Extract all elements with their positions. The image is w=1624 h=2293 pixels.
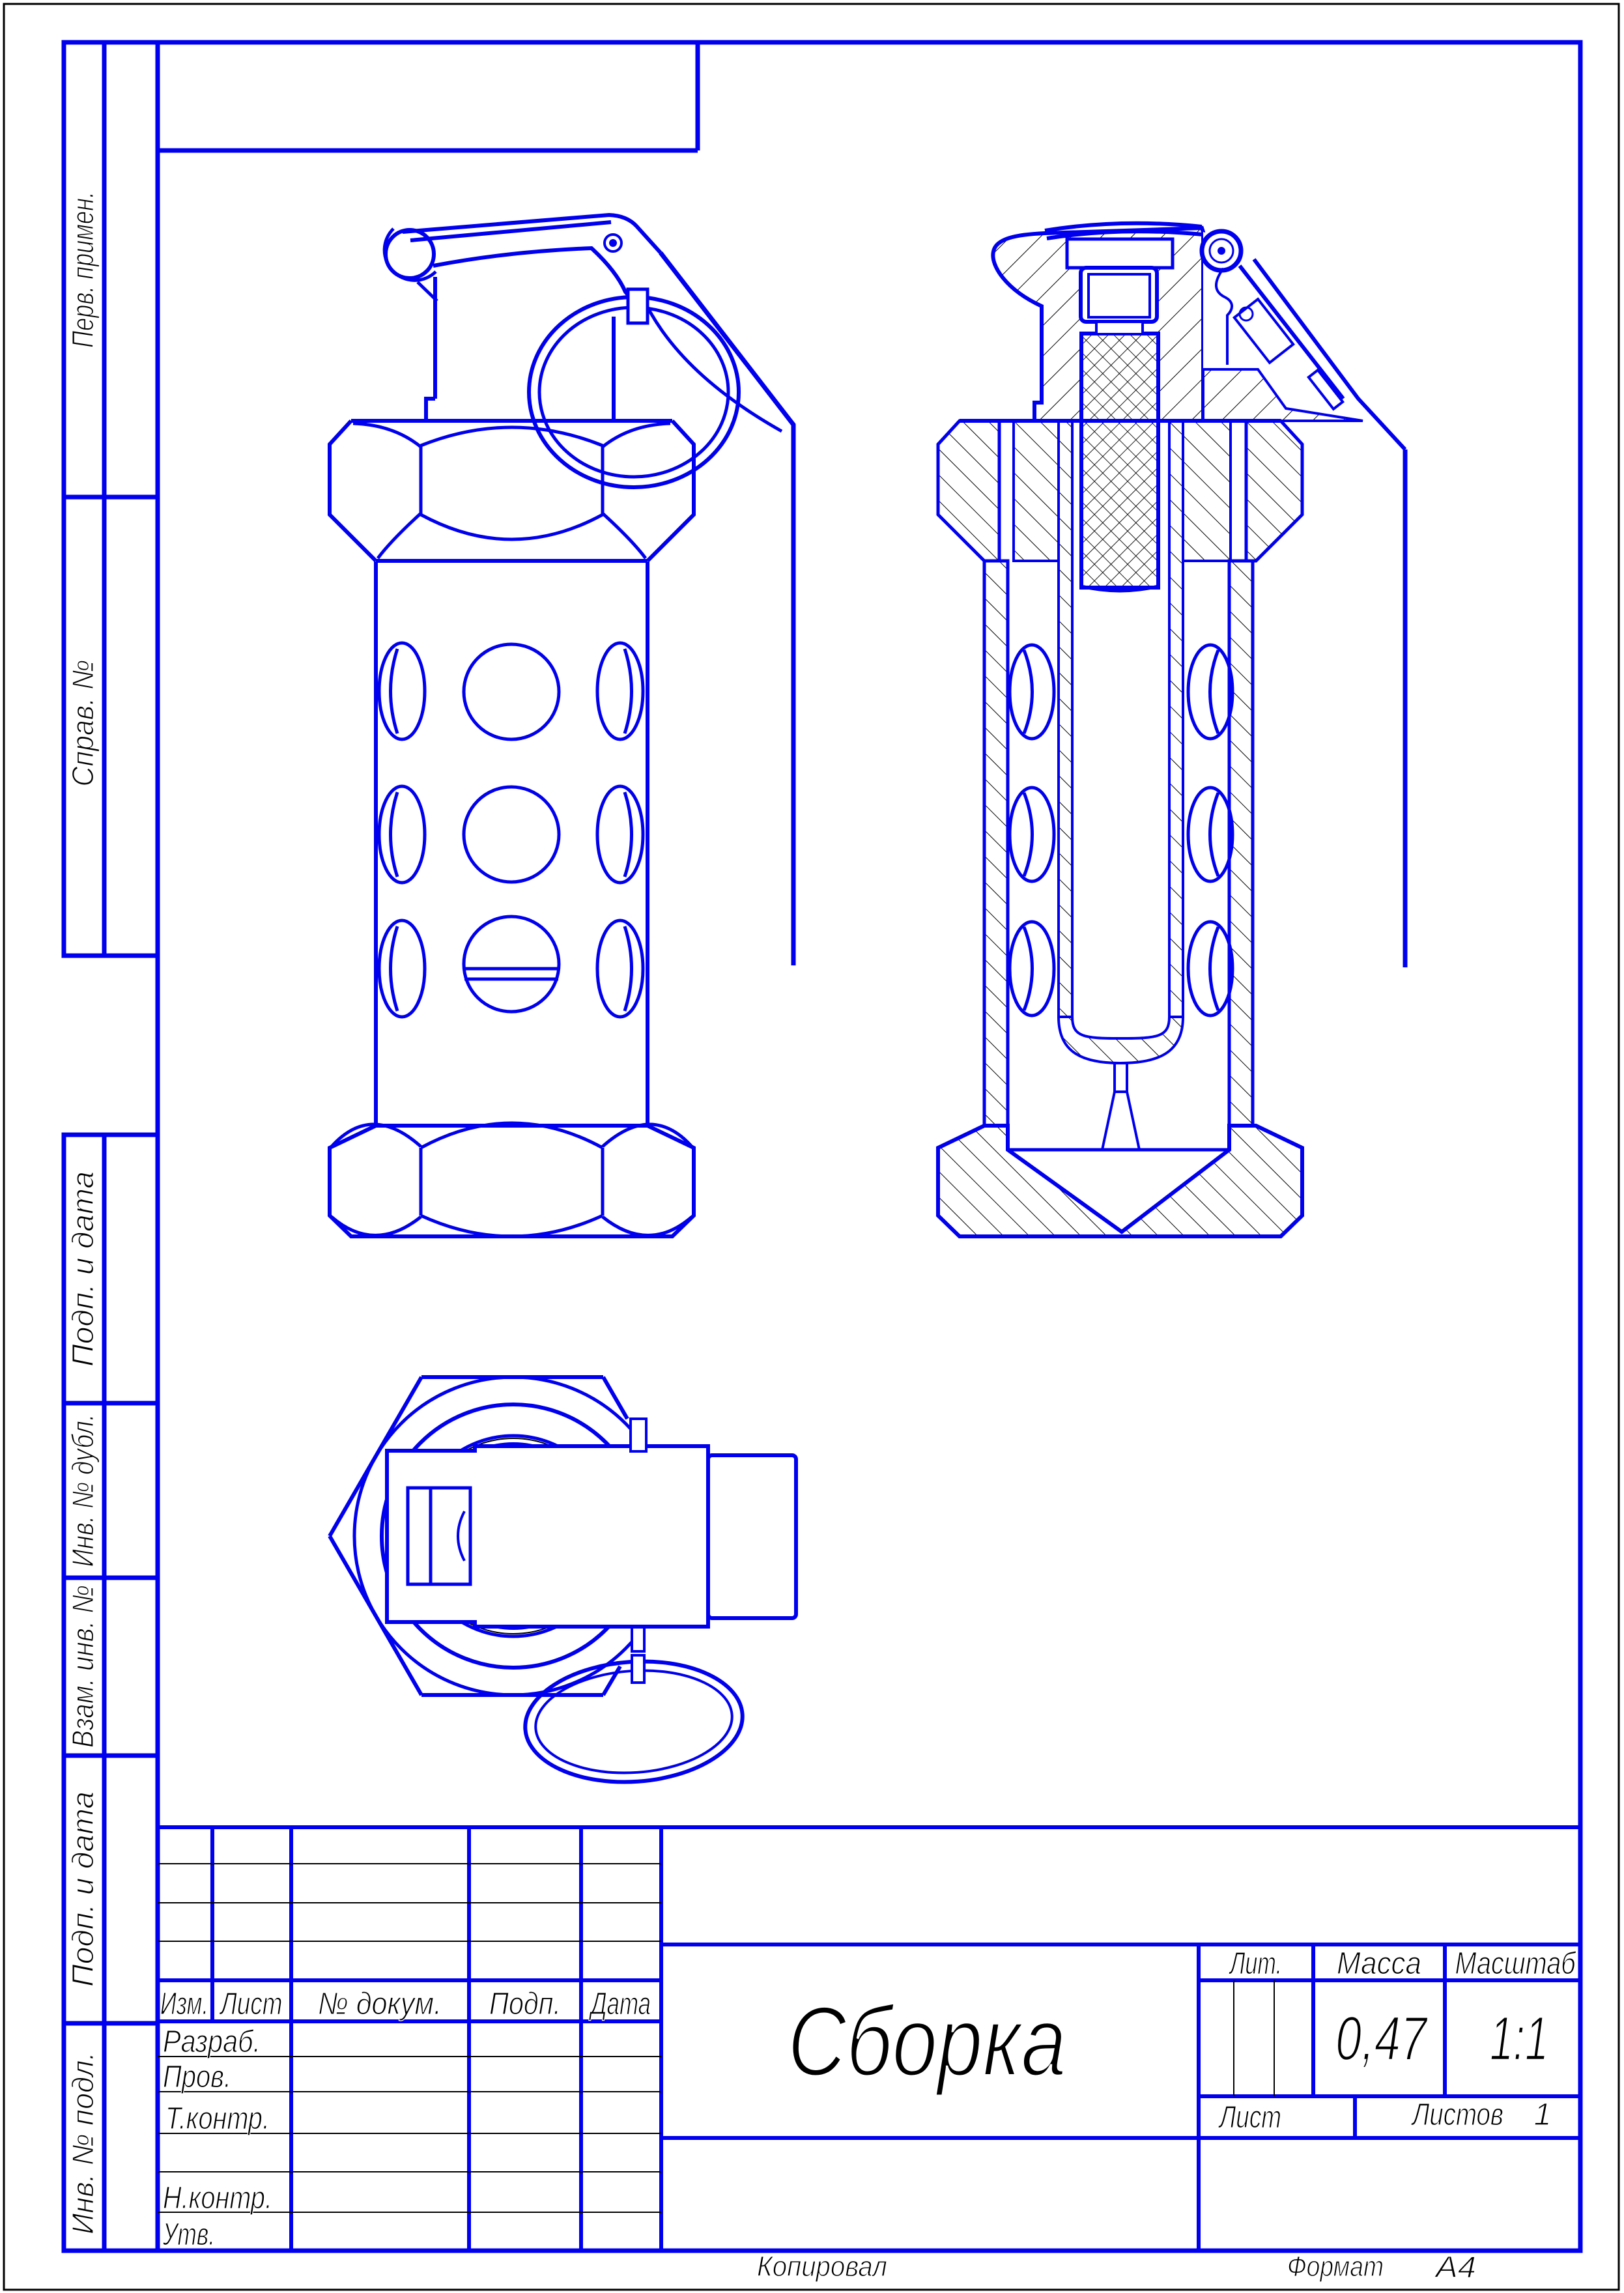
svg-text:Взам. инв. №: Взам. инв. №	[66, 1585, 100, 1748]
svg-text:1: 1	[1534, 2098, 1552, 2132]
svg-text:Т.контр.: Т.контр.	[165, 2101, 270, 2136]
svg-text:Масштаб: Масштаб	[1455, 1946, 1577, 1981]
svg-text:Масса: Масса	[1337, 1946, 1421, 1981]
svg-text:Лист: Лист	[1218, 2100, 1281, 2135]
svg-text:Формат: Формат	[1287, 2251, 1384, 2283]
svg-text:Н.контр.: Н.контр.	[163, 2181, 272, 2215]
svg-text:0,47: 0,47	[1335, 2004, 1429, 2073]
svg-text:№ докум.: № докум.	[318, 1987, 442, 2021]
svg-text:Подп. и дата: Подп. и дата	[66, 1171, 100, 1367]
svg-text:Подп.: Подп.	[489, 1987, 561, 2021]
svg-text:Подп. и дата: Подп. и дата	[66, 1791, 100, 1987]
svg-text:Копировал: Копировал	[757, 2251, 887, 2283]
svg-text:Утв.: Утв.	[162, 2217, 215, 2252]
svg-text:Лит.: Лит.	[1229, 1946, 1282, 1981]
svg-text:Дата: Дата	[588, 1987, 651, 2021]
svg-text:Лист: Лист	[219, 1987, 282, 2021]
svg-text:Изм.: Изм.	[160, 1987, 208, 2021]
svg-text:1:1: 1:1	[1490, 2004, 1548, 2073]
svg-text:Сборка: Сборка	[788, 1986, 1066, 2097]
svg-text:Разраб.: Разраб.	[163, 2025, 261, 2059]
svg-text:Инв. № подл.: Инв. № подл.	[66, 2052, 100, 2234]
svg-text:Пров.: Пров.	[163, 2060, 231, 2094]
svg-text:Листов: Листов	[1411, 2098, 1503, 2132]
svg-text:Инв. № дубл.: Инв. № дубл.	[66, 1414, 100, 1567]
svg-text:Справ. №: Справ. №	[66, 660, 100, 787]
svg-text:Перв. примен.: Перв. примен.	[66, 192, 100, 348]
svg-text:А4: А4	[1434, 2250, 1476, 2284]
